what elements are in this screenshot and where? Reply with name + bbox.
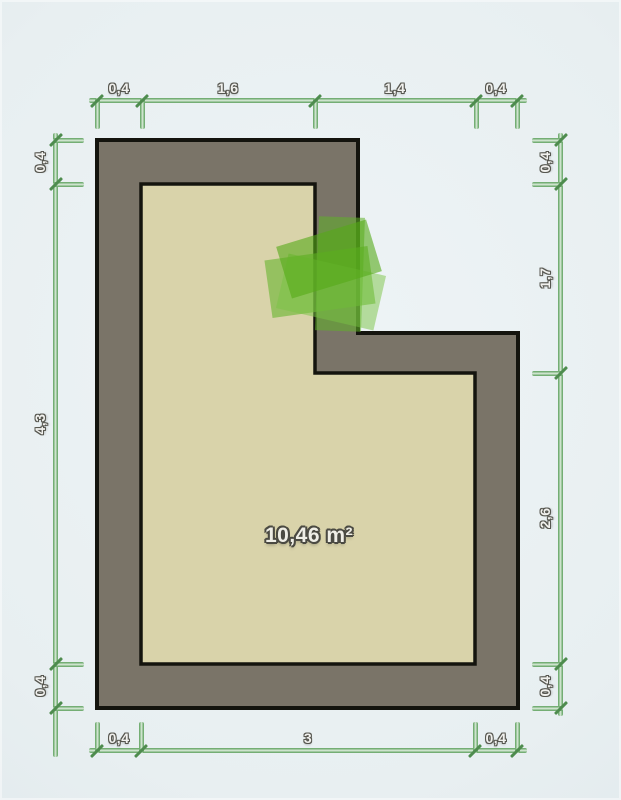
- dimension-label: 1,6: [218, 80, 239, 96]
- dimension-label: 1,4: [385, 80, 406, 96]
- dimension-label: 0,4: [32, 152, 48, 173]
- dimension-line-top: [89, 98, 527, 103]
- dimension-label: 0,4: [109, 730, 130, 746]
- dimension-line-right: [558, 133, 563, 716]
- dimension-label: 0,4: [486, 80, 507, 96]
- dimension-label: 0,4: [109, 80, 130, 96]
- dimension-label: 0,4: [32, 676, 48, 697]
- dimension-label: 0,4: [486, 730, 507, 746]
- room-area-label: 10,46 m²: [265, 524, 353, 548]
- dimension-label: 1,7: [537, 268, 553, 289]
- dimension-label: 4,3: [32, 414, 48, 435]
- dimension-label: 0,4: [537, 152, 553, 173]
- dimension-line-bottom: [89, 748, 527, 753]
- floorplan-drawing: [0, 0, 621, 800]
- dimension-label: 0,4: [537, 676, 553, 697]
- floorplan-canvas: 0,41,61,40,40,430,40,44,30,40,41,72,60,4…: [0, 0, 621, 800]
- dimension-label: 3: [304, 730, 312, 746]
- dimension-label: 2,6: [537, 508, 553, 529]
